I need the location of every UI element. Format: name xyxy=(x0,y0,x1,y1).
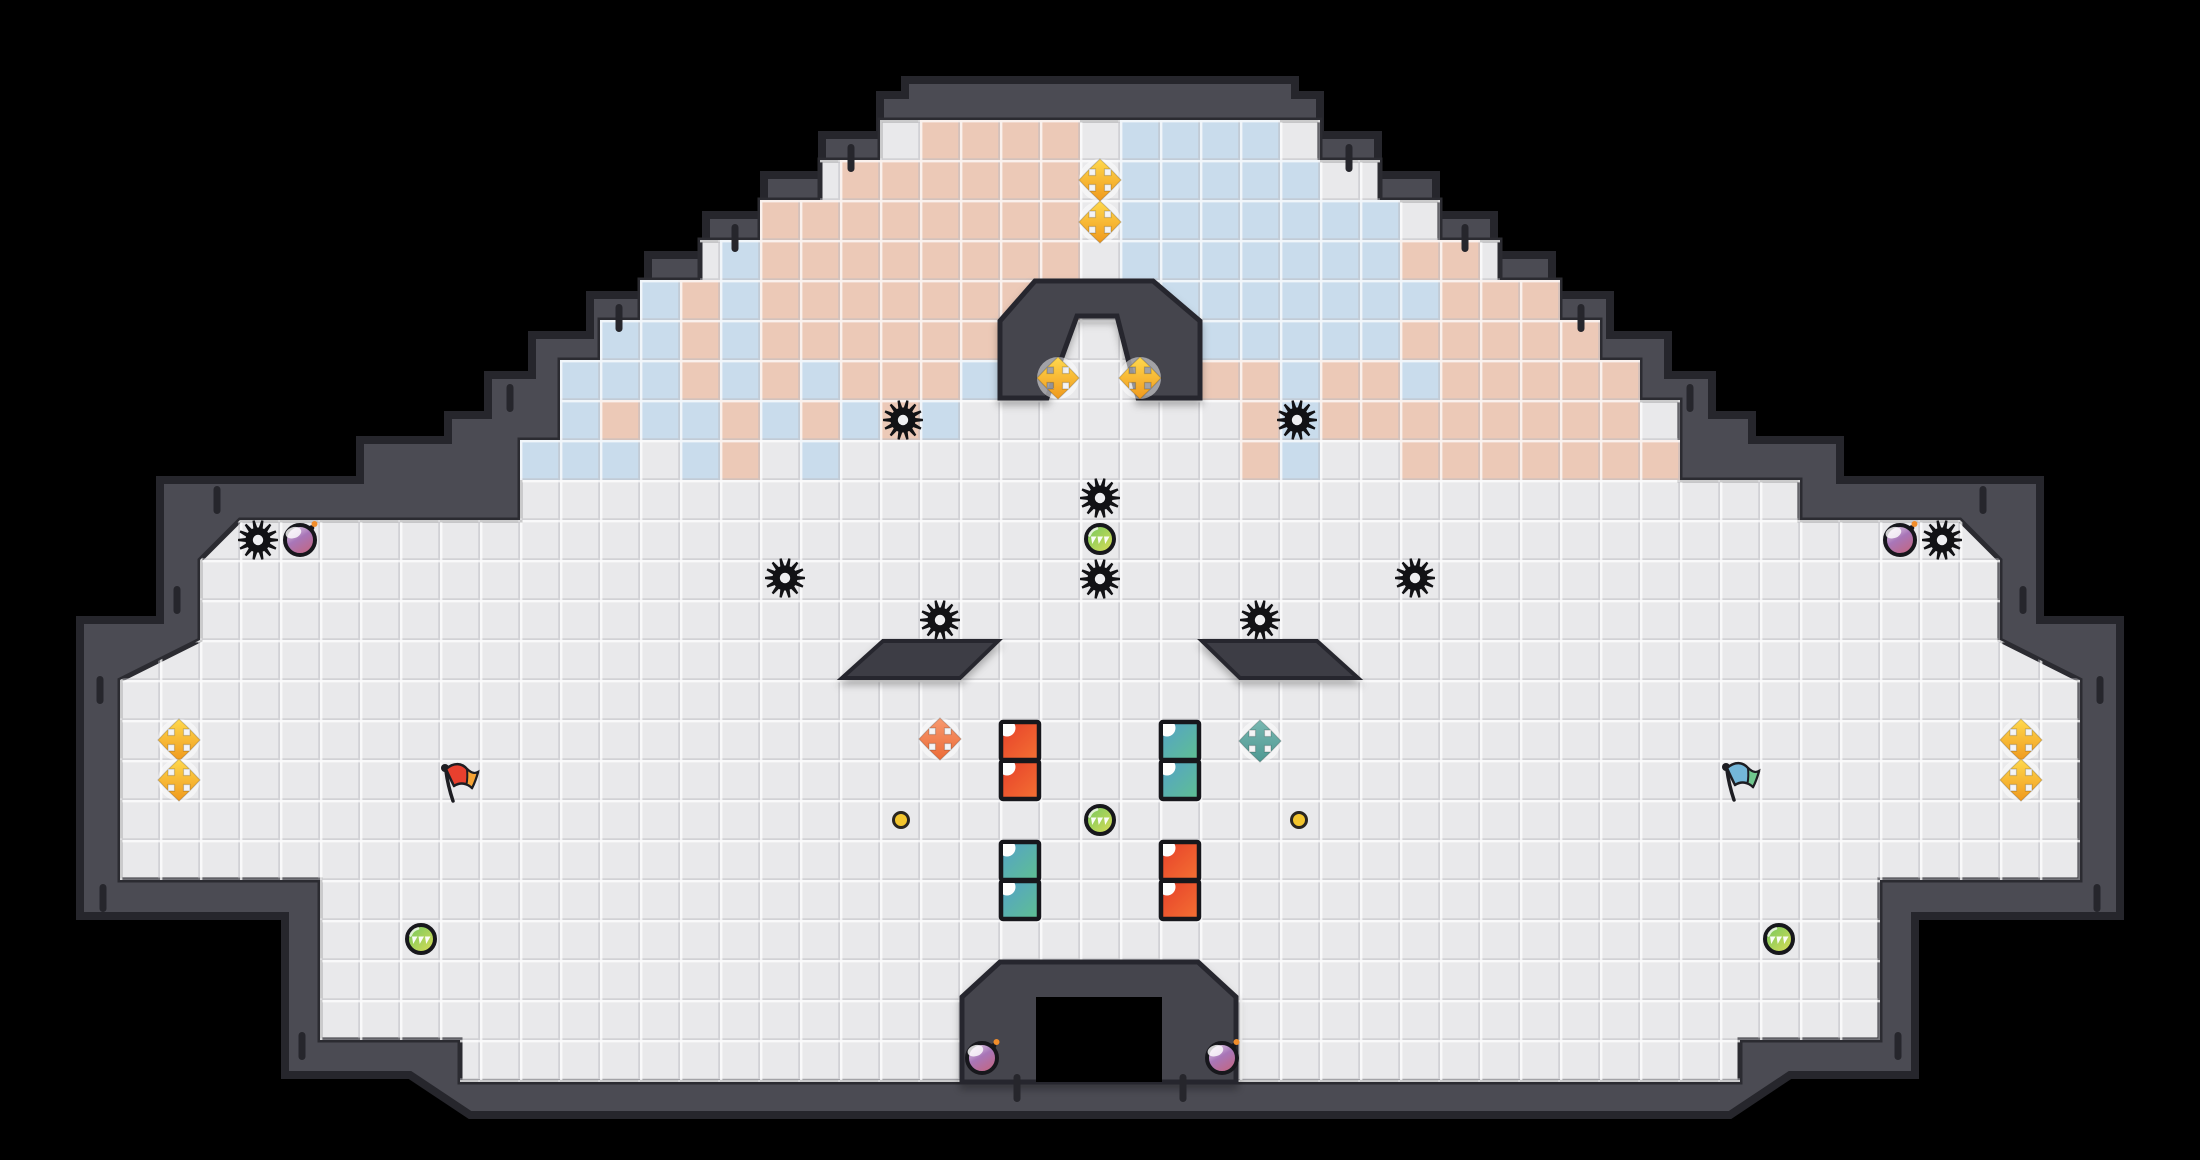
teal-cross-pickup xyxy=(1239,720,1281,762)
wall-tick-mark xyxy=(2094,884,2101,912)
gear-hole xyxy=(780,573,790,583)
wall-tick-mark xyxy=(299,1032,306,1060)
wall-tick-mark xyxy=(1578,304,1585,332)
dot-body xyxy=(894,813,909,828)
gear-hole xyxy=(1292,415,1302,425)
green-orb-pickup xyxy=(407,925,435,953)
wall-tick-mark xyxy=(1014,1074,1021,1102)
gear-hole xyxy=(898,415,908,425)
gear-hole xyxy=(935,615,945,625)
wall-tick-mark xyxy=(1687,384,1694,412)
red-block-pickup xyxy=(1159,840,1200,881)
wall-tick-mark xyxy=(616,304,623,332)
wall-tick-mark xyxy=(848,144,855,172)
gold-cross-pickup xyxy=(158,719,200,761)
wall-tick-mark xyxy=(97,676,104,704)
doorway-pit xyxy=(1036,997,1162,1082)
teal-block-pickup xyxy=(1159,759,1200,800)
wall-tick-mark xyxy=(732,224,739,252)
game-viewport[interactable] xyxy=(0,0,2200,1160)
gear-hole xyxy=(1255,615,1265,625)
wall-tick-mark xyxy=(174,586,181,614)
red-block-pickup xyxy=(999,720,1040,761)
wall-tick-mark xyxy=(2020,586,2027,614)
teal-block-pickup xyxy=(999,879,1040,920)
orange-cross-pickup xyxy=(919,718,961,760)
wall-tick-mark xyxy=(1346,144,1353,172)
gold-cross-pickup xyxy=(2000,759,2042,801)
gear-hole xyxy=(1937,535,1947,545)
bomb-spark xyxy=(1234,1039,1240,1045)
green-orb-pickup xyxy=(1086,806,1114,834)
gold-cross-pickup xyxy=(158,759,200,801)
wall-tick-mark xyxy=(100,884,107,912)
bomb-spark xyxy=(312,521,318,527)
gold-cross-pickup xyxy=(1079,159,1121,201)
bomb-spark xyxy=(994,1039,1000,1045)
wall-tick-mark xyxy=(507,384,514,412)
wall-tick-mark xyxy=(214,486,221,514)
red-block-pickup xyxy=(999,759,1040,800)
wall-tick-mark xyxy=(2097,676,2104,704)
bomb-spark xyxy=(1912,521,1918,527)
green-orb-pickup xyxy=(1086,525,1114,553)
gold-cross-pickup xyxy=(1079,201,1121,243)
gold-cross-pickup xyxy=(2000,719,2042,761)
small-coin-dot xyxy=(1292,813,1307,828)
gear-hole xyxy=(1095,493,1105,503)
wall-tick-mark xyxy=(1462,224,1469,252)
gold-cross-pickup xyxy=(1037,357,1079,399)
gear-hole xyxy=(1095,574,1105,584)
gold-cross-pickup xyxy=(1119,357,1161,399)
teal-block-pickup xyxy=(1159,720,1200,761)
wall-tick-mark xyxy=(1895,1032,1902,1060)
green-orb-pickup xyxy=(1765,925,1793,953)
wall-tick-mark xyxy=(1980,486,1987,514)
level-canvas[interactable] xyxy=(0,0,2200,1160)
red-block-pickup xyxy=(1159,879,1200,920)
wall-tick-mark xyxy=(1180,1074,1187,1102)
gear-hole xyxy=(253,535,263,545)
teal-block-pickup xyxy=(999,840,1040,881)
small-coin-dot xyxy=(894,813,909,828)
gear-hole xyxy=(1410,573,1420,583)
dot-body xyxy=(1292,813,1307,828)
